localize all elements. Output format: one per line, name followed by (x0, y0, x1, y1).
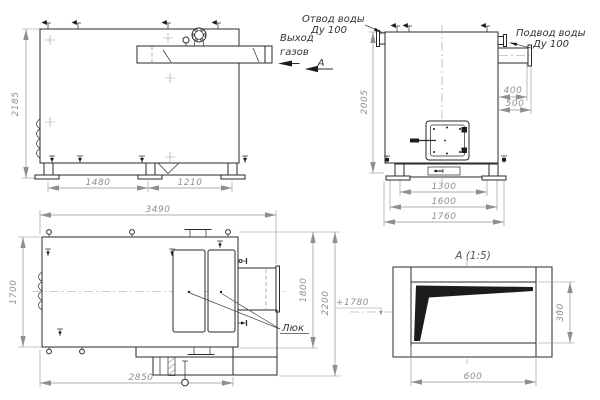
dim-inlet-500: 500 (506, 99, 525, 109)
hatch-right (208, 250, 235, 332)
gas-exit-label-2: газов (280, 47, 309, 58)
dim-inlet-400: 400 (504, 86, 523, 96)
drain-fitting (182, 361, 189, 386)
dim-width-2200: 2200 (321, 291, 331, 316)
bottom-flange-stub (188, 347, 214, 355)
lifting-lugs-side (42, 20, 222, 29)
water-outlet-callout: Отвод воды Ду 100 (302, 14, 382, 36)
water-outlet-flange (377, 31, 386, 47)
detail-title: А (1:5) (454, 250, 491, 262)
dim-base-1300: 1300 (432, 182, 457, 192)
door-hinge-top (462, 127, 468, 133)
dim-opening-width: 600 (464, 372, 483, 382)
gas-exit-callout: Выход газов (278, 33, 314, 67)
dim-base-1760: 1760 (432, 212, 457, 222)
burner-flange-top (39, 272, 43, 310)
hatch-left (173, 250, 205, 332)
section-letter: А (317, 58, 325, 69)
gas-duct-top (238, 266, 280, 312)
level-mark: +1780 (336, 298, 383, 315)
water-inlet-nozzle (498, 35, 532, 67)
side-view: 2185 1705 1480 1210 (11, 20, 333, 192)
front-view: 2005 400 500 1300 1600 1760 (302, 14, 586, 226)
lifting-lugs-front (391, 23, 491, 32)
dim-width-1800: 1800 (299, 278, 309, 303)
dim-base-front: 1480 (86, 178, 111, 188)
water-inlet-callout: Подвод воды Ду 100 (509, 28, 586, 50)
dim-opening-height: 300 (556, 303, 566, 322)
water-inlet-label-2: Ду 100 (532, 39, 569, 50)
dim-level-mark: +1780 (336, 298, 369, 308)
water-outlet-label-1: Отвод воды (302, 14, 365, 25)
skid-side (35, 163, 245, 179)
skid-front (386, 164, 506, 180)
flow-arrow-icon (278, 61, 292, 67)
door-hinge-bottom (462, 148, 468, 154)
dim-length-2850: 2850 (129, 373, 154, 383)
water-outlet-label-2: Ду 100 (310, 25, 347, 36)
top-flange-stub (185, 230, 211, 238)
dim-overall-height-front: 2005 (360, 90, 370, 115)
dim-base-1600: 1600 (432, 197, 457, 207)
section-a-arrow: А (305, 58, 333, 72)
gas-exit-label-1: Выход (280, 33, 314, 44)
hatch-label: Люк (281, 323, 304, 334)
dim-base-rear: 1210 (178, 178, 203, 188)
drawing-canvas: 2185 1705 1480 1210 (0, 0, 600, 400)
dim-overall-height-side: 2185 (11, 92, 21, 117)
dim-body-width: 1700 (9, 280, 19, 305)
view-direction-arrow-icon (305, 66, 318, 72)
top-view: 3490 1700 1800 2200 2850 (9, 205, 341, 387)
door-handle (410, 139, 419, 143)
dim-overall-length: 3490 (146, 205, 171, 215)
burner-flange-side (37, 119, 41, 158)
water-inlet-label-1: Подвод воды (516, 28, 586, 39)
detail-geometry (350, 257, 561, 364)
detail-view-a: А (1:5) +1780 300 600 (336, 250, 575, 386)
